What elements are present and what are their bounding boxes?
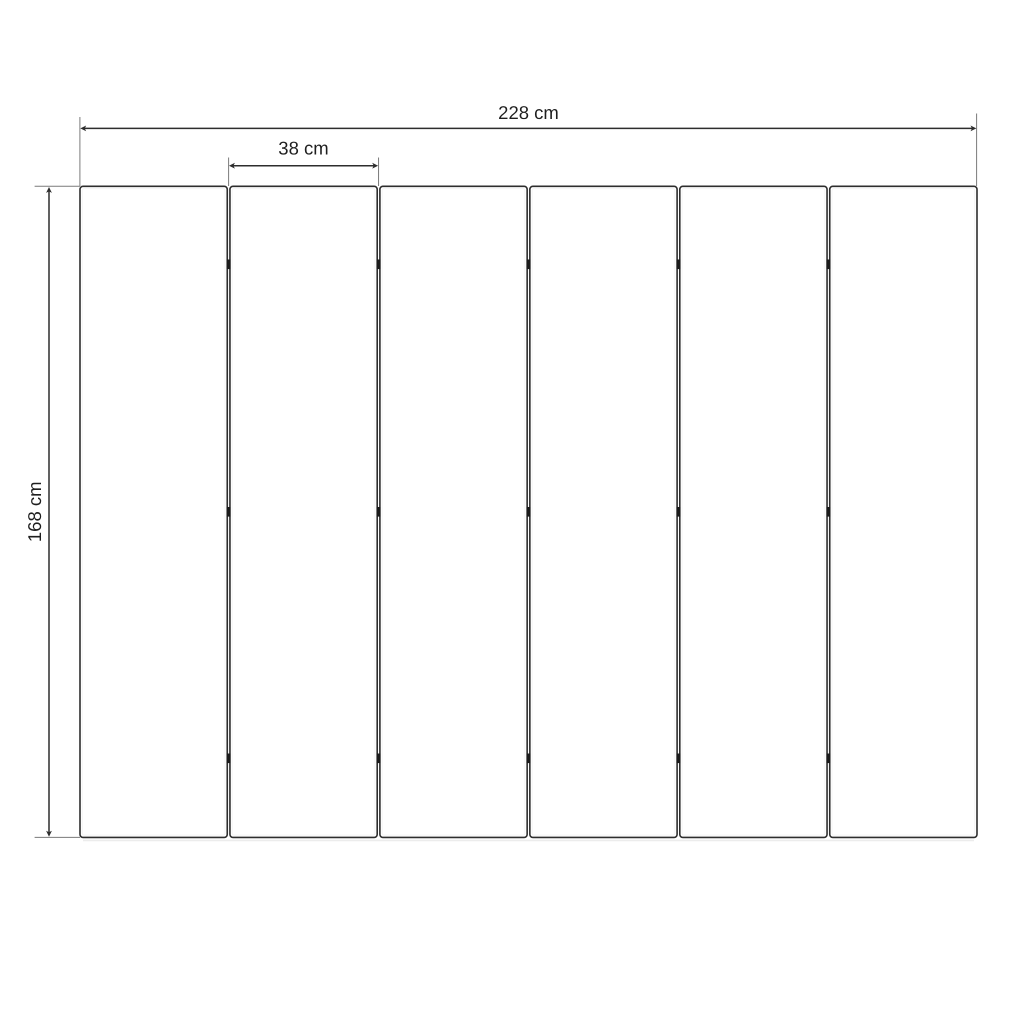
svg-text:228 cm: 228 cm (498, 102, 559, 123)
svg-text:38 cm: 38 cm (278, 137, 328, 158)
svg-text:168 cm: 168 cm (24, 481, 45, 542)
